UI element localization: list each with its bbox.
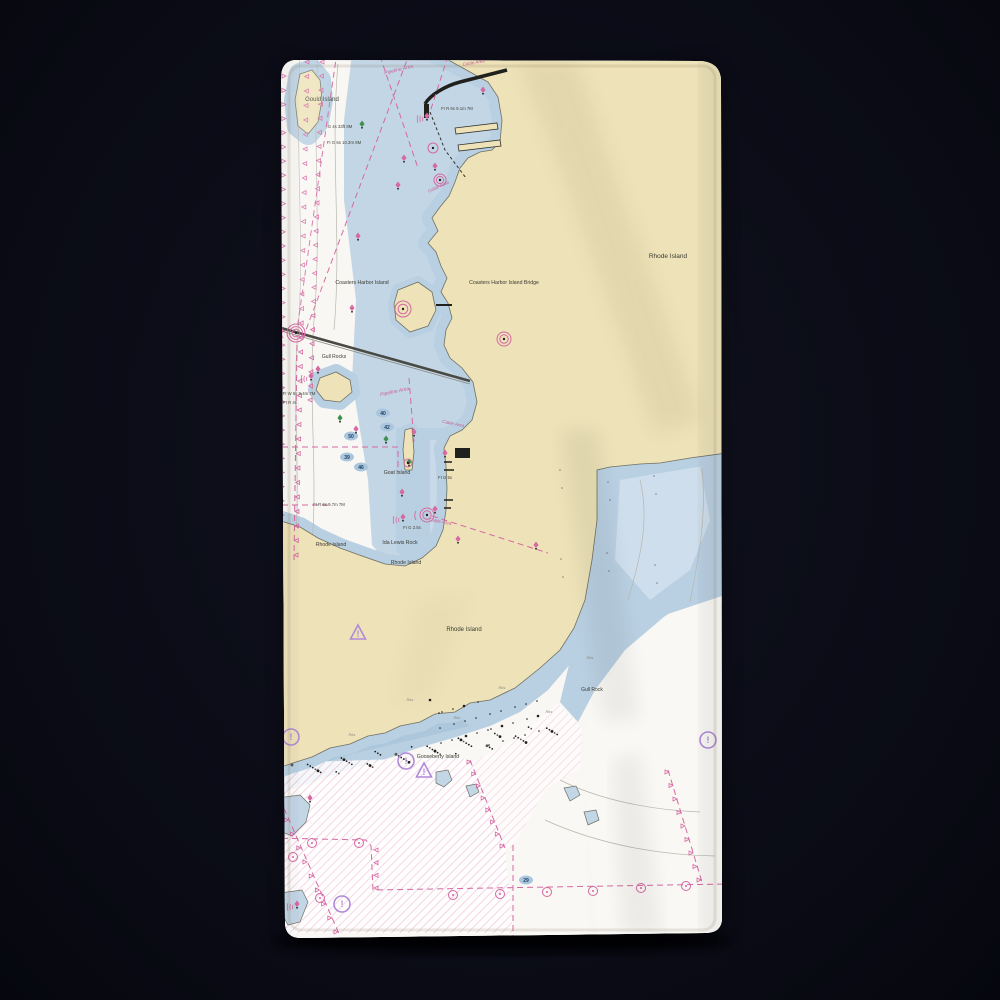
rock-dot — [525, 703, 527, 705]
rock-dot — [515, 735, 517, 737]
rock-dot — [460, 739, 463, 742]
rock-dot — [351, 763, 353, 765]
rock-dot — [475, 717, 477, 719]
rock-dot — [471, 745, 473, 747]
rock-dot — [487, 729, 489, 731]
depth-sounding: 40 — [380, 411, 386, 417]
light-characteristic-label: FI R 6s 9.7m 7M — [313, 502, 345, 507]
rock-dot — [377, 752, 379, 754]
rock-dot — [312, 767, 314, 769]
cable-triangle-icon — [272, 790, 276, 794]
rock-dot — [499, 735, 502, 738]
rock-dot — [488, 744, 490, 746]
rock-dot — [554, 732, 556, 734]
rock-dot — [439, 727, 441, 729]
rock-dot — [335, 771, 337, 773]
rock-dot — [463, 705, 466, 708]
rock-dot — [464, 720, 466, 722]
depth-sounding: 42 — [384, 425, 390, 431]
map-label: Rhode Island — [391, 560, 422, 566]
rock-dot — [465, 742, 467, 744]
chart-print: 404250394629!!!!!! Gould IslandCoasters … — [272, 50, 734, 945]
rock-dot — [524, 734, 526, 736]
map-label: Coasters Harbor Island — [335, 280, 388, 286]
rock-dot — [656, 582, 658, 584]
rock-dot — [514, 706, 516, 708]
depth-sounding: 46 — [358, 465, 364, 471]
rock-dot — [526, 718, 528, 720]
rock-dot — [441, 711, 443, 713]
rock-dot — [432, 749, 434, 751]
rock-dot — [546, 727, 548, 729]
rock-dot — [512, 722, 514, 724]
rock-dot — [490, 728, 492, 730]
rock-dot — [476, 732, 478, 734]
rocks-label: Rks — [499, 685, 506, 690]
rock-dot — [528, 726, 530, 728]
cable-triangle-icon — [278, 804, 282, 808]
rock-dot — [307, 764, 309, 766]
rock-dot — [341, 757, 343, 759]
rock-dot — [551, 730, 554, 733]
rock-dot — [315, 768, 317, 770]
rock-dot — [607, 481, 609, 483]
depth-sounding: 29 — [523, 878, 529, 884]
rock-dot — [465, 735, 468, 738]
rock-dot — [489, 713, 491, 715]
rock-dot — [517, 737, 519, 739]
rock-dot — [513, 737, 515, 739]
map-label: Gooseberry Island — [417, 754, 460, 760]
rock-dot — [500, 710, 502, 712]
rocks-label: Rks — [349, 732, 356, 737]
rock-dot — [523, 740, 525, 742]
rock-dot — [538, 730, 540, 732]
map-label: Rhode Island — [649, 253, 688, 260]
map-label: Coasters Harbor Island Bridge — [469, 280, 539, 286]
rock-dot — [556, 734, 558, 736]
rock-dot — [468, 744, 470, 746]
light-characteristic-label: FI G 6s 10.3m 8M — [327, 140, 362, 145]
rock-dot — [343, 758, 346, 761]
rock-dot — [520, 738, 522, 740]
rock-dot — [491, 748, 493, 750]
rock-dot — [653, 475, 655, 477]
map-label: Goat Island — [384, 470, 411, 476]
rock-dot — [561, 487, 563, 489]
rock-dot — [348, 762, 350, 764]
rock-dot — [408, 761, 411, 764]
rock-dot — [320, 771, 322, 773]
rock-dot — [438, 712, 440, 714]
rock-dot — [317, 769, 320, 772]
depth-sounding: 50 — [348, 434, 354, 440]
rock-dot — [501, 725, 504, 728]
product-photo-background: 404250394629!!!!!! Gould IslandCoasters … — [0, 0, 1000, 1000]
rock-dot — [530, 728, 532, 730]
rock-dot — [440, 742, 442, 744]
rock-dot — [346, 760, 348, 762]
rock-dot — [367, 763, 369, 765]
rock-dot — [502, 740, 504, 742]
rock-dot — [400, 757, 402, 759]
rock-dot — [525, 741, 528, 744]
svg-text:!: ! — [341, 899, 344, 909]
rocks-label: Rks — [454, 715, 461, 720]
rock-dot — [549, 729, 551, 731]
rock-dot — [380, 754, 382, 756]
rock-dot — [338, 773, 340, 775]
rock-dot — [560, 558, 562, 560]
light-characteristic-label: FI G 5s — [438, 475, 452, 480]
rock-dot — [655, 493, 657, 495]
rocks-label: Rks — [546, 709, 553, 714]
rock-dot — [451, 739, 453, 741]
rock-dot — [559, 469, 561, 471]
svg-text:!: ! — [357, 629, 360, 639]
rock-dot — [497, 734, 499, 736]
light-characteristic-label: FI G 2.5s — [403, 525, 421, 530]
rock-dot — [434, 750, 437, 753]
rock-dot — [609, 499, 611, 501]
svg-text:!: ! — [423, 767, 426, 777]
rock-dot — [494, 733, 496, 735]
rock-dot — [486, 744, 489, 747]
map-label: Rhode Island — [316, 542, 347, 548]
rock-dot — [426, 745, 428, 747]
rock-dot — [309, 765, 311, 767]
rock-dot — [477, 701, 479, 703]
rock-dot — [562, 576, 564, 578]
rock-dot — [654, 564, 656, 566]
map-label: Ida Lewis Rock — [382, 540, 418, 546]
rock-dot — [536, 700, 538, 702]
rock-dot — [458, 737, 460, 739]
depth-sounding: 39 — [344, 455, 350, 461]
rock-dot — [369, 764, 372, 767]
rock-dot — [374, 751, 376, 753]
beach-towel-nautical-chart: 404250394629!!!!!! Gould IslandCoasters … — [0, 0, 1000, 1000]
rocks-label: Rks — [587, 655, 594, 660]
rock-dot — [453, 723, 455, 725]
svg-text:!: ! — [405, 756, 408, 766]
light-characteristic-label: FI R 6s 9.1m 7M — [441, 106, 473, 111]
rock-dot — [463, 741, 465, 743]
light-characteristic-label: G 4s 33ft 8M — [328, 124, 353, 129]
rock-dot — [489, 746, 491, 748]
map-label: Gull Rocks — [322, 354, 347, 360]
rock-dot — [537, 715, 540, 718]
rock-dot — [411, 746, 413, 748]
rock-dot — [429, 747, 431, 749]
rock-dot — [395, 753, 398, 756]
rock-dot — [372, 766, 374, 768]
rock-dot — [452, 708, 454, 710]
